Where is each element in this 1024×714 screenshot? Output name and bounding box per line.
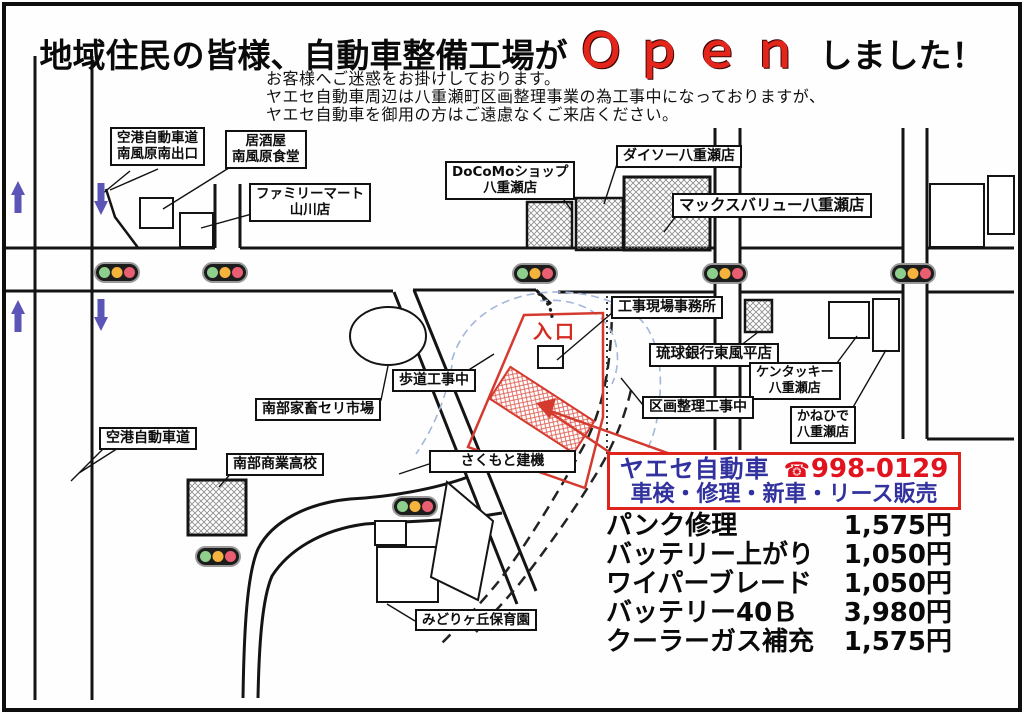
building-familymart <box>180 213 213 247</box>
traffic-light-icon <box>95 263 139 282</box>
building-ryukyu-bank <box>745 300 772 332</box>
building-daiso <box>576 198 623 250</box>
traffic-light-icon <box>891 264 935 283</box>
price-row: ワイパーブレード 1,050円 <box>606 570 952 599</box>
building-docomo <box>527 202 572 248</box>
down-arrow-icon <box>94 183 108 215</box>
price-item: バッテリー40Ｂ <box>606 599 798 628</box>
down-arrow-icon <box>94 299 108 331</box>
phone-icon: ☎ <box>784 458 810 482</box>
price-row: クーラーガス補充 1,575円 <box>606 628 952 657</box>
notice-text: お客様へご迷惑をお掛けしております。 ヤエセ自動車周辺は八重瀬町区画整理事業の為… <box>266 70 825 124</box>
traffic-light-icon <box>513 264 557 283</box>
title-suffix: しました！ <box>820 29 985 77</box>
map-label-hodou-koji: 歩道工事中 <box>392 369 476 392</box>
map-label-izakaya: 居酒屋 南風原食堂 <box>225 130 307 169</box>
price-row: バッテリー40Ｂ 3,980円 <box>606 599 952 628</box>
up-arrow-icon <box>11 300 25 332</box>
price-item: ワイパーブレード <box>606 570 812 599</box>
building-northeast-2 <box>988 176 1014 234</box>
price-value: 1,575円 <box>844 512 952 541</box>
price-item: パンク修理 <box>606 512 737 541</box>
building-nanbu-shogyo <box>188 480 246 535</box>
price-item: バッテリー上がり <box>606 541 814 570</box>
map-label-airport-exit: 空港自動車道 南風原南出口 <box>110 127 205 166</box>
price-value: 1,575円 <box>844 628 952 657</box>
map-label-entrance: 入口 <box>533 317 577 344</box>
map-label-daiso: ダイソー八重瀬店 <box>616 145 742 168</box>
price-value: 3,980円 <box>844 599 952 628</box>
map-label-docomo: DoCoMoショップ 八重瀬店 <box>445 161 575 200</box>
building-northeast-1 <box>930 184 984 247</box>
building-midorigaoka <box>377 547 438 602</box>
building-sakumoto <box>431 482 493 600</box>
map-label-familymart: ファミリーマート 山川店 <box>249 183 371 222</box>
building-site-office <box>538 346 563 368</box>
notice-line-3: ヤエセ自動車を御用の方はご遠慮なくご来店ください。 <box>266 106 825 124</box>
price-item: クーラーガス補充 <box>606 628 814 657</box>
map-label-nanbu-shogyo: 南部商業高校 <box>226 453 324 476</box>
map-label-sakumoto: さくもと建機 <box>429 450 576 473</box>
notice-line-1: お客様へご迷惑をお掛けしております。 <box>266 70 825 88</box>
up-arrow-icon <box>11 181 25 213</box>
map-label-site-office: 工事現場事務所 <box>611 296 723 319</box>
shop-phone: ☎998-0129 <box>784 456 949 483</box>
building-kfc <box>829 302 869 338</box>
traffic-light-icon <box>203 263 247 282</box>
map-label-kukaku-koji: 区画整理工事中 <box>642 396 754 419</box>
map-label-kfc: ケンタッキー 八重瀬店 <box>749 362 841 400</box>
seri-market-area <box>350 307 426 365</box>
shop-ad-box: ヤエセ自動車 ☎998-0129 車検・修理・新車・リース販売 <box>607 452 961 510</box>
building-kanehide <box>873 299 899 351</box>
traffic-light-icon <box>393 497 437 516</box>
price-row: パンク修理 1,575円 <box>606 512 952 541</box>
traffic-light-icon <box>703 264 747 283</box>
notice-line-2: ヤエセ自動車周辺は八重瀬町区画整理事業の為工事中になっておりますが、 <box>266 88 825 106</box>
shop-name: ヤエセ自動車 <box>620 457 770 482</box>
traffic-light-icon <box>196 547 240 566</box>
price-row: バッテリー上がり 1,050円 <box>606 541 952 570</box>
price-value: 1,050円 <box>844 570 952 599</box>
map-label-kanehide: かねひで 八重瀬店 <box>790 406 856 444</box>
map-label-maxvalu: マックスバリュー八重瀬店 <box>672 193 872 218</box>
price-list: パンク修理 1,575円 バッテリー上がり 1,050円 ワイパーブレード 1,… <box>606 512 952 657</box>
map-label-seri-market: 南部家畜セリ市場 <box>255 398 381 421</box>
price-value: 1,050円 <box>844 541 952 570</box>
building-small-sw <box>375 521 406 545</box>
building-izakaya <box>140 198 173 228</box>
map-label-airport-road: 空港自動車道 <box>99 427 197 450</box>
phone-number: 998-0129 <box>811 454 948 484</box>
shop-services: 車検・修理・新車・リース販売 <box>631 483 938 506</box>
flyer-page: { "title": { "prefix": "地域住民の皆様、自動車整備工場が… <box>0 0 1024 714</box>
map-label-midorigaoka: みどりヶ丘保育園 <box>415 609 537 631</box>
shop-building <box>490 367 595 453</box>
